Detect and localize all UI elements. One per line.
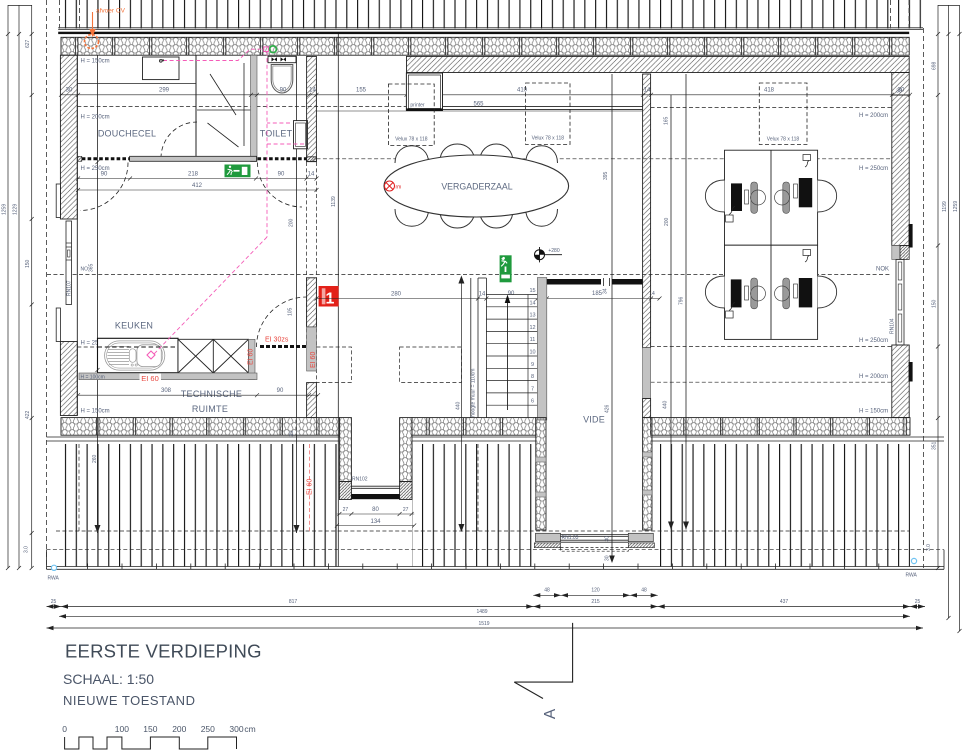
svg-text:EI 60: EI 60 [307, 479, 314, 495]
svg-text:RWA: RWA [906, 573, 918, 579]
svg-text:rm: rm [396, 185, 402, 191]
svg-text:H = 250cm: H = 250cm [859, 338, 888, 344]
svg-text:155: 155 [356, 88, 367, 94]
svg-text:280: 280 [391, 292, 402, 298]
svg-text:1259: 1259 [953, 201, 959, 212]
svg-text:25: 25 [51, 599, 57, 605]
svg-text:90: 90 [280, 88, 287, 94]
svg-text:299: 299 [159, 88, 170, 94]
svg-text:218: 218 [188, 172, 199, 178]
svg-text:afvoer CV: afvoer CV [96, 8, 126, 15]
svg-text:90: 90 [508, 291, 515, 297]
svg-text:134: 134 [370, 519, 381, 525]
svg-text:14: 14 [308, 172, 315, 178]
svg-text:34: 34 [603, 288, 609, 294]
svg-text:H = 100cm: H = 100cm [81, 375, 105, 381]
svg-text:412: 412 [192, 183, 203, 189]
svg-text:150: 150 [25, 259, 31, 268]
svg-text:H = 150cm: H = 150cm [81, 59, 110, 65]
svg-text:A: A [542, 708, 559, 719]
svg-text:Velux 78 x 118: Velux 78 x 118 [532, 136, 565, 142]
svg-text:EI 60: EI 60 [248, 349, 255, 365]
svg-text:27: 27 [343, 507, 349, 513]
svg-text:627: 627 [25, 39, 31, 48]
svg-text:hoogte muur = 110cm: hoogte muur = 110cm [471, 369, 477, 417]
svg-text:308: 308 [161, 388, 172, 394]
svg-text:printer: printer [410, 103, 425, 109]
svg-text:H = 250cm: H = 250cm [859, 166, 888, 172]
svg-text:80: 80 [372, 507, 379, 513]
svg-text:90: 90 [278, 172, 285, 178]
svg-text:10: 10 [529, 350, 535, 356]
svg-text:KEUKEN: KEUKEN [115, 321, 153, 331]
svg-text:698: 698 [932, 61, 938, 70]
svg-text:RUIMTE: RUIMTE [192, 404, 228, 414]
svg-text:1: 1 [326, 291, 335, 308]
svg-text:EERSTE VERDIEPING: EERSTE VERDIEPING [65, 641, 262, 662]
svg-text:9: 9 [531, 362, 534, 368]
svg-text:1199: 1199 [942, 201, 948, 212]
svg-text:Velux 78 x 118: Velux 78 x 118 [767, 137, 800, 143]
svg-text:200: 200 [289, 218, 295, 227]
svg-text:1139: 1139 [331, 196, 337, 207]
svg-text:200: 200 [664, 217, 670, 226]
svg-text:TOILET: TOILET [260, 129, 293, 139]
svg-text:0: 0 [62, 724, 67, 734]
svg-text:RN102: RN102 [352, 477, 368, 483]
svg-text:440: 440 [456, 401, 462, 410]
svg-text:DOUCHECEL: DOUCHECEL [98, 129, 156, 139]
svg-text:35: 35 [289, 431, 295, 437]
svg-text:120: 120 [591, 588, 600, 594]
svg-text:90: 90 [277, 388, 284, 394]
svg-text:7: 7 [531, 386, 534, 392]
svg-text:VIDE: VIDE [583, 415, 605, 425]
svg-text:817: 817 [289, 599, 298, 605]
svg-text:H = 200cm: H = 200cm [81, 115, 110, 121]
svg-text:260: 260 [92, 454, 98, 463]
svg-text:48: 48 [544, 588, 550, 594]
svg-text:15: 15 [529, 288, 535, 294]
svg-text:14: 14 [529, 300, 535, 306]
svg-text:215: 215 [591, 599, 600, 605]
svg-text:351: 351 [932, 441, 938, 450]
svg-text:EI 30zs: EI 30zs [265, 337, 289, 344]
svg-text:+280: +280 [548, 248, 559, 254]
svg-text:27: 27 [403, 507, 409, 513]
svg-text:8: 8 [531, 374, 534, 380]
svg-text:3.0: 3.0 [24, 546, 30, 553]
svg-text:TECHNISCHE: TECHNISCHE [181, 389, 243, 399]
svg-text:165: 165 [664, 116, 670, 125]
svg-text:410: 410 [517, 88, 528, 94]
svg-text:418: 418 [764, 88, 775, 94]
svg-text:30: 30 [66, 88, 73, 94]
svg-text:150: 150 [143, 724, 157, 734]
svg-text:150: 150 [932, 299, 938, 308]
svg-text:437: 437 [780, 599, 789, 605]
svg-text:3.0: 3.0 [926, 544, 932, 551]
svg-text:300: 300 [229, 724, 243, 734]
svg-text:105: 105 [288, 307, 294, 316]
svg-text:NIEUWE TOESTAND: NIEUWE TOESTAND [63, 693, 195, 708]
svg-text:48: 48 [641, 588, 647, 594]
svg-text:250: 250 [201, 724, 215, 734]
svg-text:422: 422 [25, 410, 31, 419]
svg-text:1229: 1229 [13, 204, 19, 215]
svg-text:185: 185 [592, 291, 603, 297]
svg-text:H = 150cm: H = 150cm [859, 409, 888, 415]
svg-text:H = 200cm: H = 200cm [859, 113, 888, 119]
svg-text:NO: NO [81, 267, 89, 273]
svg-text:RN107: RN107 [67, 280, 73, 296]
svg-text:EI 60: EI 60 [310, 352, 317, 368]
svg-text:RN1.03: RN1.03 [562, 535, 579, 541]
svg-text:100: 100 [115, 724, 129, 734]
svg-text:13: 13 [529, 313, 535, 319]
svg-text:395: 395 [603, 171, 609, 180]
svg-text:30: 30 [896, 89, 902, 95]
svg-text:1489: 1489 [476, 609, 487, 615]
svg-text:426: 426 [605, 404, 611, 413]
svg-text:Velux 78 x 118: Velux 78 x 118 [395, 137, 428, 143]
svg-text:SCHAAL: 1:50: SCHAAL: 1:50 [63, 671, 154, 687]
svg-text:1519: 1519 [478, 621, 489, 627]
svg-text:1259: 1259 [2, 204, 8, 215]
svg-text:796: 796 [679, 296, 685, 305]
svg-text:200: 200 [172, 724, 186, 734]
svg-text:14: 14 [479, 292, 486, 298]
svg-text:cm: cm [244, 724, 255, 734]
svg-text:RWA: RWA [48, 576, 60, 582]
svg-text:NOK: NOK [876, 267, 889, 273]
svg-text:12: 12 [529, 325, 535, 331]
svg-text:365: 365 [89, 263, 95, 272]
svg-text:30: 30 [604, 536, 610, 542]
svg-text:VERGADERZAAL: VERGADERZAAL [441, 181, 512, 191]
svg-text:EI 60: EI 60 [141, 374, 159, 383]
svg-text:H = 150cm: H = 150cm [81, 409, 110, 415]
svg-text:25: 25 [915, 599, 921, 605]
svg-text:90: 90 [101, 172, 108, 178]
svg-text:RN104: RN104 [890, 318, 896, 334]
svg-text:11: 11 [530, 337, 536, 343]
svg-text:H = 200cm: H = 200cm [859, 374, 888, 380]
svg-text:6: 6 [531, 399, 534, 405]
svg-text:440: 440 [663, 400, 669, 409]
svg-text:30: 30 [604, 555, 610, 561]
svg-text:14: 14 [309, 88, 316, 94]
